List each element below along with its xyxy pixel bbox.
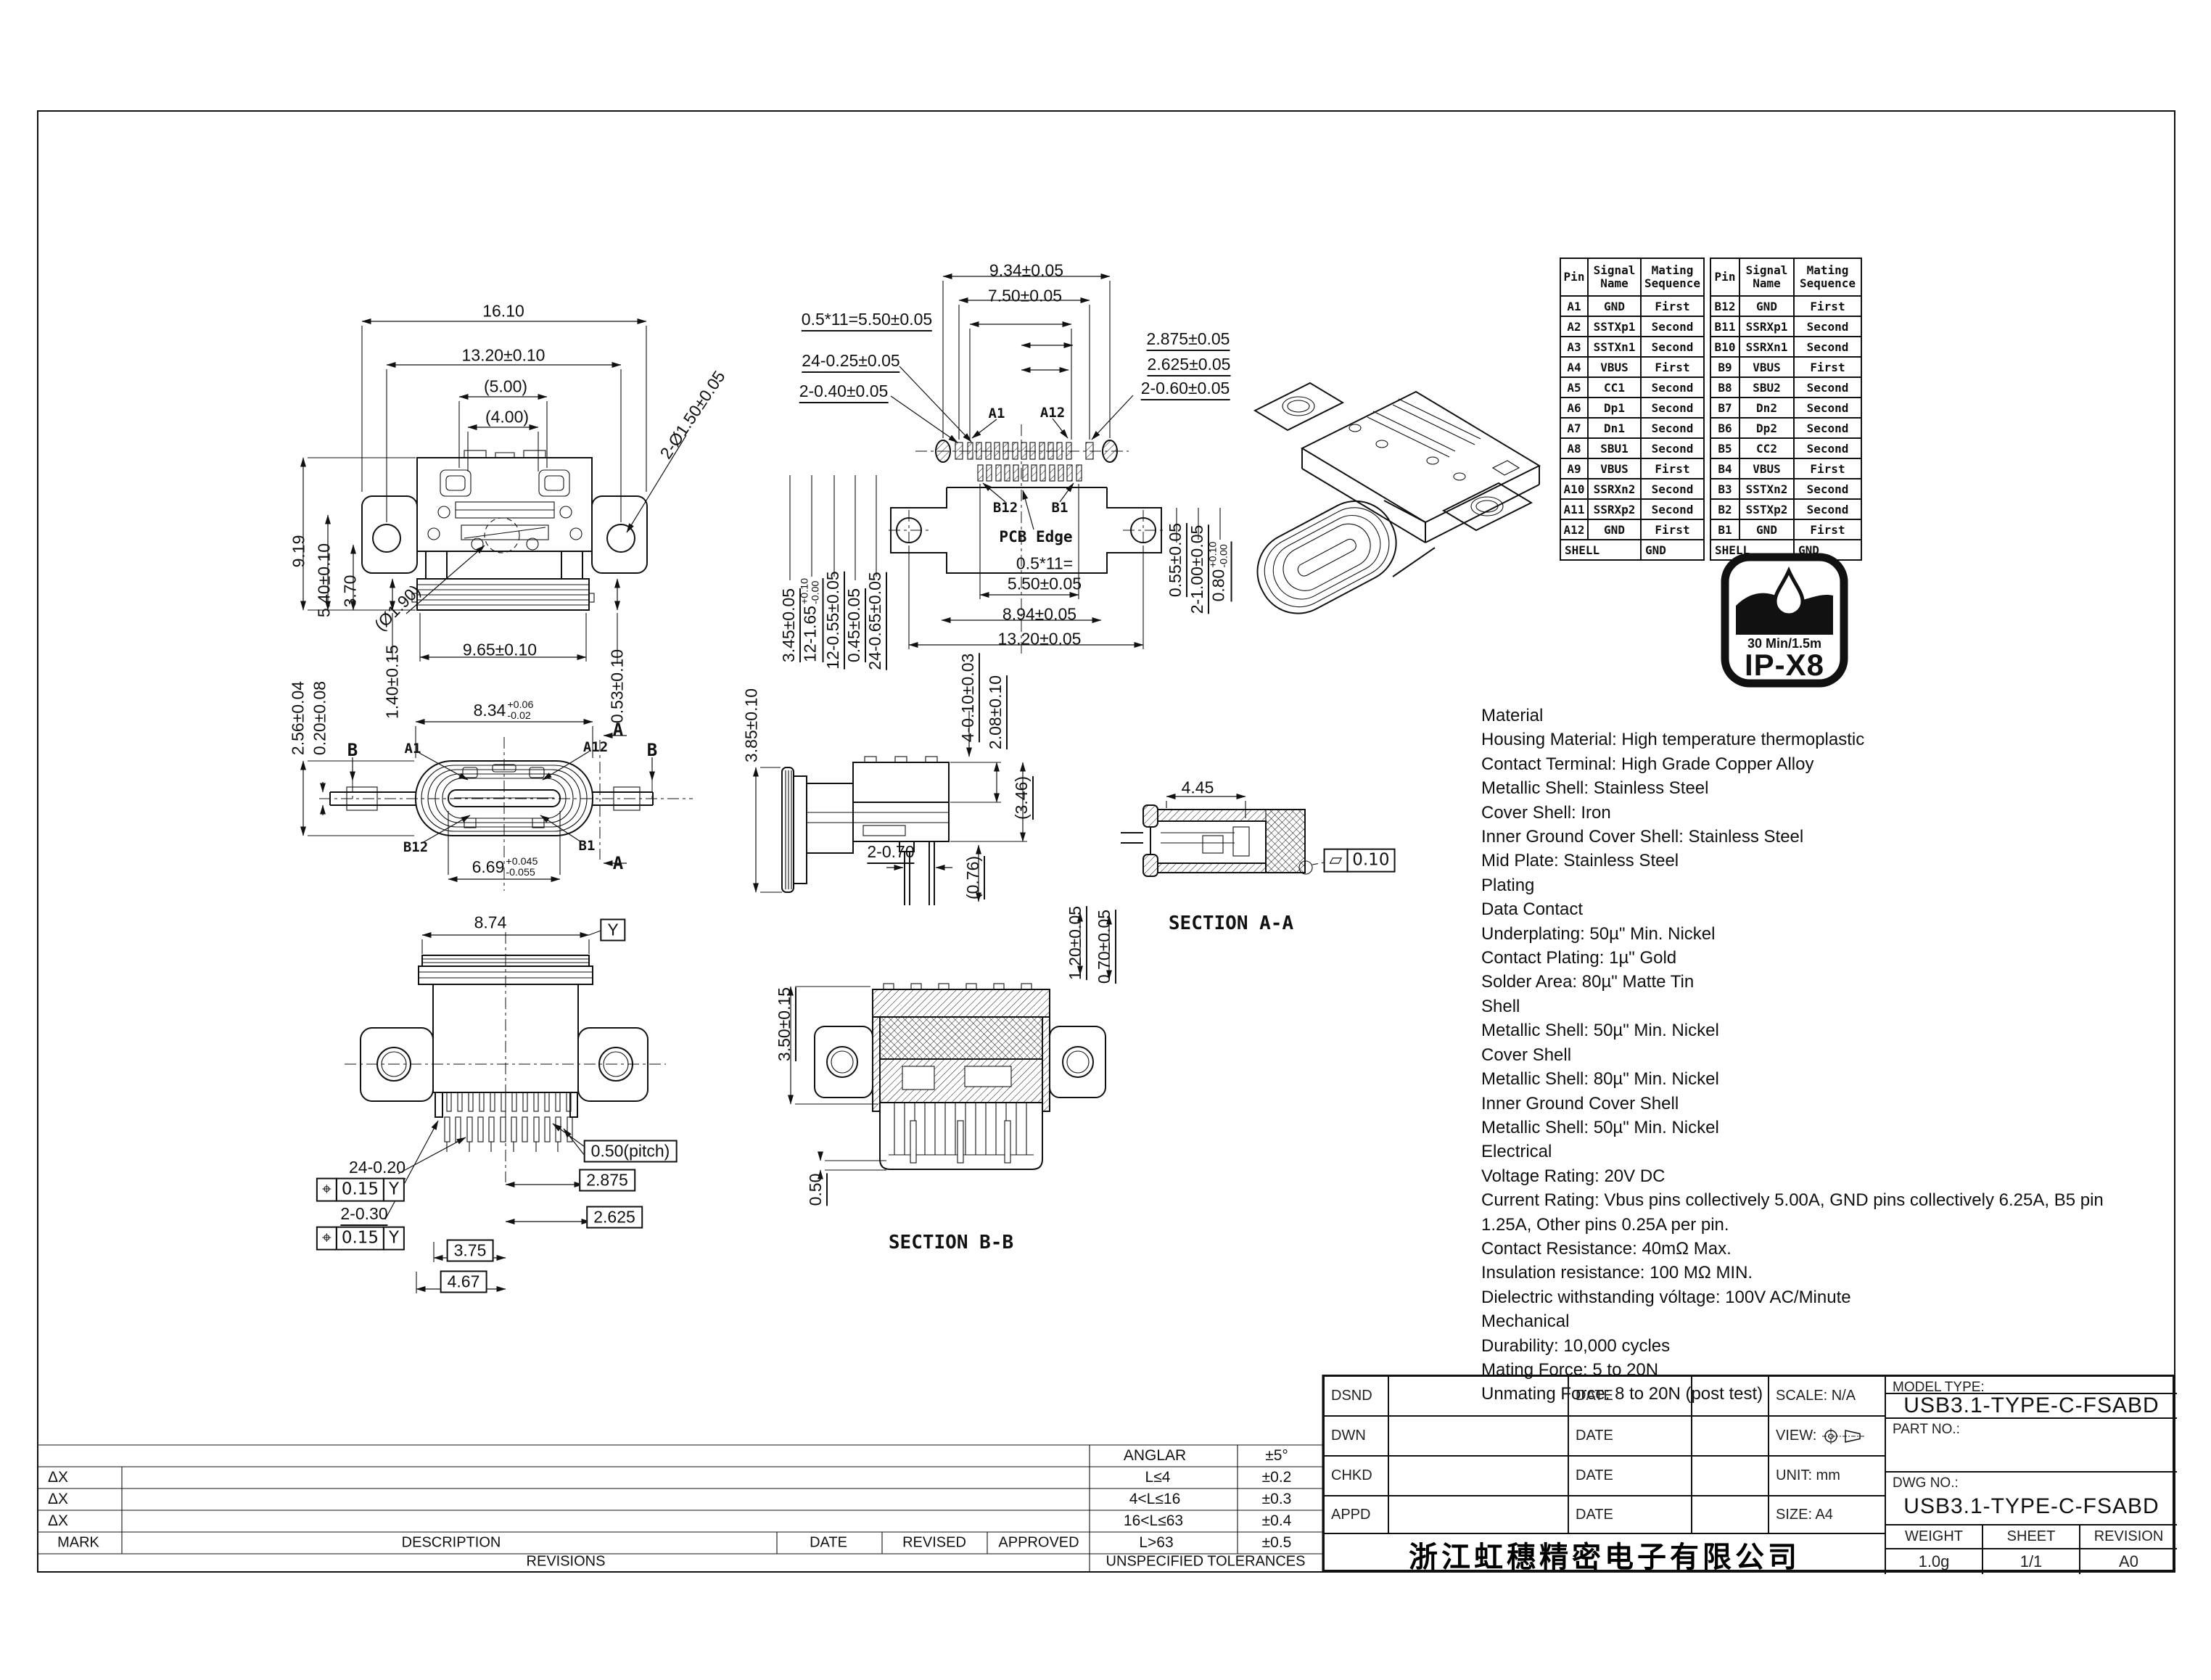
dimension-label: 4.67 [440,1271,487,1293]
pin-cell: CC2 [1739,438,1794,458]
pin-cell: A7 [1560,418,1588,438]
pin-cell: First [1794,296,1861,316]
pin-cell: VBUS [1739,357,1794,377]
dimension-label: REVISIONS [527,1554,606,1570]
revision-value: A0 [2080,1549,2177,1574]
dimension-label: 0.5*11= [1016,554,1073,574]
pin-table-row: B5CC2Second [1710,438,1861,458]
sheet-label: SHEET [1983,1525,2080,1549]
pin-table-row: A1GNDFirst [1560,296,1704,316]
dimension-label: 0.53±0.10 [608,649,627,723]
pin-cell: First [1641,458,1704,479]
pin-cell: SSRXp1 [1739,316,1794,337]
dimension-label: 24-0.65±0.05 [865,572,887,670]
pin-cell: B12 [1710,296,1739,316]
material-spec-line: Insulation resistance: 100 MΩ MIN. [1481,1261,2192,1285]
dimension-label: A12 [583,739,608,755]
position-tolerance-frame: ⌖0.15Y [316,1227,405,1251]
pin-cell: Second [1641,337,1704,357]
dimension-label: 2-0.40±0.05 [799,382,889,403]
ip-x8-waterproof-icon: 30 Min/1.5m IP-X8 [1720,552,1849,688]
dimension-label: 3.85±0.10 [742,688,762,762]
pin-cell: A1 [1560,296,1588,316]
material-spec-block: MaterialHousing Material: High temperatu… [1481,704,2192,1407]
material-spec-line: Mechanical [1481,1309,2192,1333]
pin-table-b-side: PinSignal NameMating SequenceB12GNDFirst… [1710,258,1862,561]
pin-cell: VBUS [1739,458,1794,479]
dimension-label: B12 [403,839,428,855]
dimension-label: 3.45±0.05 [779,588,801,662]
pin-cell: Second [1794,438,1861,458]
pin-cell: B10 [1710,337,1739,357]
material-spec-line: Metallic Shell: 50µ" Min. Nickel [1481,1116,2192,1140]
pin-cell: Second [1794,316,1861,337]
material-spec-line: Current Rating: Vbus pins collectively 5… [1481,1188,2192,1212]
dimension-label: 13.20±0.05 [998,630,1082,649]
pin-table-row: B9VBUSFirst [1710,357,1861,377]
section-a-mark: A [613,853,623,873]
third-angle-projection-icon [1822,1427,1874,1446]
pin-cell: Second [1794,499,1861,519]
pin-callout-b1: B1 [1052,500,1069,516]
pin-table-row: B8SBU2Second [1710,377,1861,398]
scale-label: SCALE: N/A [1769,1377,1886,1417]
size-label: SIZE: A4 [1769,1496,1886,1534]
pin-table-row: B3SSTXn2Second [1710,479,1861,499]
dimension-label: 13.20±0.10 [462,346,545,366]
model-type-label: MODEL TYPE: [1886,1377,2177,1394]
dimension-label: L≤4 [1145,1469,1171,1486]
dwg-no-value: USB3.1-TYPE-C-FSABD [1886,1488,2177,1525]
pin-cell: CC1 [1588,377,1641,398]
pin-cell: Dn1 [1588,418,1641,438]
material-spec-line: Contact Resistance: 40mΩ Max. [1481,1237,2192,1261]
pin-cell: VBUS [1588,357,1641,377]
material-spec-line: Durability: 10,000 cycles [1481,1334,2192,1358]
dsnd-date-label: DATE [1569,1377,1692,1417]
pin-cell: Dp1 [1588,398,1641,418]
pin-table-row: B11SSRXp1Second [1710,316,1861,337]
dsnd-label: DSND [1325,1377,1389,1417]
pin-cell: A2 [1560,316,1588,337]
pin-cell: SSTXn1 [1588,337,1641,357]
dimension-label: 0.50 [806,1174,828,1206]
dimension-label: REVISED [902,1535,966,1552]
dimension-label: 12-1.65+0.10-0.00 [800,578,824,662]
material-spec-line: Cover Shell [1481,1043,2192,1067]
part-no-label: PART NO.: [1886,1419,2177,1473]
pin-cell: Second [1641,499,1704,519]
dimension-label: 4-0.10±0.03 [958,654,980,743]
dimension-label: 8.34+0.06-0.02 [474,700,534,722]
pin-table-row: B12GNDFirst [1710,296,1861,316]
dimension-label: 2-0.30 [340,1204,387,1226]
pin-cell: SHELL [1560,540,1641,560]
material-spec-line: Metallic Shell: 50µ" Min. Nickel [1481,1018,2192,1042]
pin-cell: SSRXp2 [1588,499,1641,519]
material-spec-line: Solder Area: 80µ" Matte Tin [1481,970,2192,994]
dimension-label: 8.74 [474,913,507,933]
pin-table-row: B10SSRXn1Second [1710,337,1861,357]
material-spec-line: Metallic Shell: 80µ" Min. Nickel [1481,1067,2192,1091]
dimension-label: 4.45 [1182,778,1214,798]
material-spec-line: Mid Plate: Stainless Steel [1481,849,2192,873]
dimension-label: 3.75 [447,1240,494,1262]
pin-cell: GND [1588,519,1641,540]
pin-cell: B11 [1710,316,1739,337]
pin-table-row: A10SSRXn2Second [1560,479,1704,499]
weight-value: 1.0g [1886,1549,1983,1574]
material-spec-line: Housing Material: High temperature therm… [1481,728,2192,752]
pin-cell: B9 [1710,357,1739,377]
pin-callout-a1: A1 [989,405,1005,421]
dimension-label: 2.875±0.05 [1147,329,1230,351]
pin-cell: A6 [1560,398,1588,418]
dimension-label: (3.46) [1012,776,1034,820]
dimension-label: DATE [810,1535,847,1552]
unit-label: UNIT: mm [1769,1457,1886,1496]
dimension-label: ΔX [48,1512,68,1530]
material-spec-line: Electrical [1481,1140,2192,1164]
dimension-label: (0.76) [963,856,985,899]
dimension-label: 2.08±0.10 [986,675,1008,749]
material-spec-line: Inner Ground Cover Shell [1481,1092,2192,1116]
pcb-edge-label: PCB Edge [999,528,1072,545]
material-spec-line: Dielectric withstanding vóltage: 100V AC… [1481,1285,2192,1309]
dimension-label: MARK [57,1535,99,1552]
pin-cell: First [1794,357,1861,377]
pin-table-header: Signal Name [1588,258,1641,296]
pin-cell: A11 [1560,499,1588,519]
pin-cell: B7 [1710,398,1739,418]
pin-cell: SSRXn1 [1739,337,1794,357]
material-spec-line: Plating [1481,873,2192,897]
material-spec-line: Contact Plating: 1µ" Gold [1481,946,2192,970]
dimension-label: 24-0.20 [349,1158,405,1179]
dimension-label: 2.56±0.04 [289,681,308,755]
pin-cell: A4 [1560,357,1588,377]
dimension-label: 7.50±0.05 [988,287,1062,306]
pin-table-row: A9VBUSFirst [1560,458,1704,479]
material-spec-line: Voltage Rating: 20V DC [1481,1164,2192,1188]
pin-table-row: B4VBUSFirst [1710,458,1861,479]
pin-cell: First [1641,357,1704,377]
dimension-label: 2-1.00±0.05 [1187,525,1209,614]
pin-table-row: A11SSRXp2Second [1560,499,1704,519]
datum-y-label: Y [600,919,625,942]
dimension-label: ±0.2 [1262,1469,1292,1486]
pin-table-row: SHELLGND [1560,540,1704,560]
material-spec-line: Inner Ground Cover Shell: Stainless Stee… [1481,825,2192,849]
pin-table-header: Mating Sequence [1794,258,1861,296]
material-spec-line: Material [1481,704,2192,728]
dimension-label: 3.70 [341,575,361,608]
pin-table-row: B6Dp2Second [1710,418,1861,438]
pin-cell: GND [1739,296,1794,316]
dimension-label: 0.55±0.05 [1166,523,1187,597]
dimension-label: APPROVED [998,1535,1079,1552]
pin-table-row: A8SBU1Second [1560,438,1704,458]
pin-cell: Second [1794,377,1861,398]
flatness-tolerance-frame: ▱0.10 [1324,849,1396,873]
section-b-mark: B [647,740,657,760]
section-a-mark: A [613,720,623,740]
section-b-b-view [791,984,1105,1179]
front-view [303,321,686,664]
isometric-view [1243,383,1539,627]
pin-cell: SBU2 [1739,377,1794,398]
pin-cell: B2 [1710,499,1739,519]
pin-cell: Second [1641,398,1704,418]
dimension-label: B1 [579,838,596,854]
pin-table-row: B1GNDFirst [1710,519,1861,540]
model-type-value: USB3.1-TYPE-C-FSABD [1886,1394,2177,1419]
revisions-tolerance-table-grid [38,1375,1322,1572]
pin-cell: First [1641,296,1704,316]
pin-table-row: B7Dn2Second [1710,398,1861,418]
pin-cell: Second [1794,418,1861,438]
pin-cell: Second [1641,438,1704,458]
dimension-label: A1 [405,741,421,757]
pin-cell: SSRXn2 [1588,479,1641,499]
dimension-label: ANGLAR [1124,1447,1186,1465]
dimension-label: 3.50±0.15 [775,987,796,1061]
material-spec-line: Contact Terminal: High Grade Copper Allo… [1481,752,2192,776]
dimension-label: 2.625±0.05 [1148,355,1231,376]
dimension-label: 2.625 [586,1206,643,1229]
pin-cell: First [1794,519,1861,540]
pin-cell: B8 [1710,377,1739,398]
pin-cell: A12 [1560,519,1588,540]
dimension-label: 2-0.60±0.05 [1141,379,1230,400]
dimension-label: 6.69+0.045-0.055 [472,857,538,878]
dwn-label: DWN [1325,1417,1389,1457]
dimension-label: 4<L≤16 [1129,1491,1181,1508]
dimension-label: (5.00) [484,377,527,397]
dimension-label: 0.45±0.05 [844,588,866,662]
pin-cell: First [1641,519,1704,540]
material-spec-line: Data Contact [1481,897,2192,921]
section-a-a-label: SECTION A-A [1169,913,1293,934]
dimension-label: 0.50(pitch) [584,1140,678,1163]
pin-cell: Second [1794,479,1861,499]
sheet-value: 1/1 [1983,1549,2080,1574]
title-block: DSND DATE SCALE: N/A DWN DATE VIEW: CHKD… [1322,1375,2175,1572]
dwn-date-label: DATE [1569,1417,1692,1457]
dwg-no-label: DWG NO.: [1886,1473,2177,1488]
pin-cell: SSTXp1 [1588,316,1641,337]
dimension-label: 1.20±0.05 [1066,906,1087,980]
dimension-label: 5.50±0.05 [1008,575,1082,594]
pin-table-header: Signal Name [1739,258,1794,296]
revision-label: REVISION [2080,1525,2177,1549]
pin-table-header: Mating Sequence [1641,258,1704,296]
pin-cell: B6 [1710,418,1739,438]
pin-cell: First [1794,458,1861,479]
pin-cell: B1 [1710,519,1739,540]
pin-cell: A3 [1560,337,1588,357]
dimension-label: ±5° [1265,1447,1288,1465]
dimension-label: ±0.3 [1262,1491,1292,1508]
pin-cell: Second [1794,398,1861,418]
pin-table-header: Pin [1710,258,1739,296]
dimension-label: L>63 [1139,1534,1173,1552]
dimension-label: 8.94±0.05 [1002,605,1076,625]
ip-code-label: IP-X8 [1720,648,1849,683]
pin-callout-a12: A12 [1040,405,1065,421]
dimension-label: 0.70±0.05 [1095,910,1116,984]
pin-cell: B3 [1710,479,1739,499]
pin-cell: Dp2 [1739,418,1794,438]
dimension-label: 5.40±0.10 [315,543,334,617]
dimension-label: 0.80+0.10-0.00 [1209,542,1232,602]
section-b-b-label: SECTION B-B [889,1232,1013,1253]
pin-cell: B5 [1710,438,1739,458]
appd-date-label: DATE [1569,1496,1692,1534]
dimension-label: DESCRIPTION [402,1535,501,1552]
material-spec-line: Underplating: 50µ" Min. Nickel [1481,922,2192,946]
dimension-label: 2-0.70 [867,842,914,864]
pin-cell: GND [1739,519,1794,540]
weight-label: WEIGHT [1886,1525,1983,1549]
material-spec-line: Cover Shell: Iron [1481,801,2192,825]
position-tolerance-frame: ⌖0.15Y [316,1178,405,1202]
dimension-label: ΔX [48,1491,68,1508]
pin-table-row: A5CC1Second [1560,377,1704,398]
pin-cell: Second [1641,377,1704,398]
engineering-drawing-page: 16.1013.20±0.10(5.00)(4.00)2-Ø1.50±0.059… [0,0,2211,1680]
dimension-label: 2.875 [579,1169,635,1192]
company-name: 浙江虹穗精密电子有限公司 [1325,1534,1886,1574]
dimension-label: 1.40±0.15 [383,645,403,719]
dimension-label: UNSPECIFIED TOLERANCES [1106,1554,1306,1570]
pin-cell: VBUS [1588,458,1641,479]
pin-cell: GND [1588,296,1641,316]
material-spec-line: 1.25A, Other pins 0.25A per pin. [1481,1213,2192,1237]
chkd-label: CHKD [1325,1457,1389,1496]
pin-cell: Second [1641,418,1704,438]
pin-cell: SBU1 [1588,438,1641,458]
pin-table-row: A3SSTXn1Second [1560,337,1704,357]
pin-cell: Dn2 [1739,398,1794,418]
dimension-label: 16<L≤63 [1124,1512,1183,1530]
pin-table-row: A7Dn1Second [1560,418,1704,438]
appd-label: APPD [1325,1496,1389,1534]
chkd-date-label: DATE [1569,1457,1692,1496]
pin-cell: A8 [1560,438,1588,458]
pin-cell: SSTXn2 [1739,479,1794,499]
pin-cell: SSTXp2 [1739,499,1794,519]
pin-cell: GND [1641,540,1704,560]
pin-table-row: B2SSTXp2Second [1710,499,1861,519]
section-a-a-view [1080,796,1336,979]
dimension-label: 12-0.55±0.05 [823,571,845,669]
dsnd-value [1389,1377,1569,1417]
dimension-label: 9.65±0.10 [463,641,537,660]
pin-table-row: A12GNDFirst [1560,519,1704,540]
dimension-label: ΔX [48,1469,68,1486]
dimension-label: 9.34±0.05 [989,261,1063,281]
material-spec-line: Shell [1481,995,2192,1018]
dimension-label: ±0.4 [1262,1512,1292,1530]
dimension-label: 0.5*11=5.50±0.05 [802,310,932,332]
pin-table-row: A2SSTXp1Second [1560,316,1704,337]
pin-callout-b12: B12 [993,500,1018,516]
pin-cell: Second [1794,337,1861,357]
section-b-mark: B [347,740,358,760]
pin-cell: B4 [1710,458,1739,479]
dimension-label: 0.20±0.08 [310,681,330,755]
dimension-label: 16.10 [482,302,524,321]
dimension-label: 9.19 [289,535,309,568]
pin-cell: Second [1641,479,1704,499]
view-label: VIEW: [1769,1417,1886,1457]
pin-cell: A9 [1560,458,1588,479]
pin-cell: Second [1641,316,1704,337]
dimension-label: ±0.5 [1262,1534,1292,1552]
pin-table-header: Pin [1560,258,1588,296]
pin-cell: A5 [1560,377,1588,398]
pin-table-a-side: PinSignal NameMating SequenceA1GNDFirstA… [1560,258,1705,561]
pin-table-row: A4VBUSFirst [1560,357,1704,377]
material-spec-line: Metallic Shell: Stainless Steel [1481,776,2192,800]
dimension-label: (4.00) [485,408,529,427]
pin-cell: A10 [1560,479,1588,499]
dimension-label: 24-0.25±0.05 [802,351,899,373]
pin-table-row: A6Dp1Second [1560,398,1704,418]
